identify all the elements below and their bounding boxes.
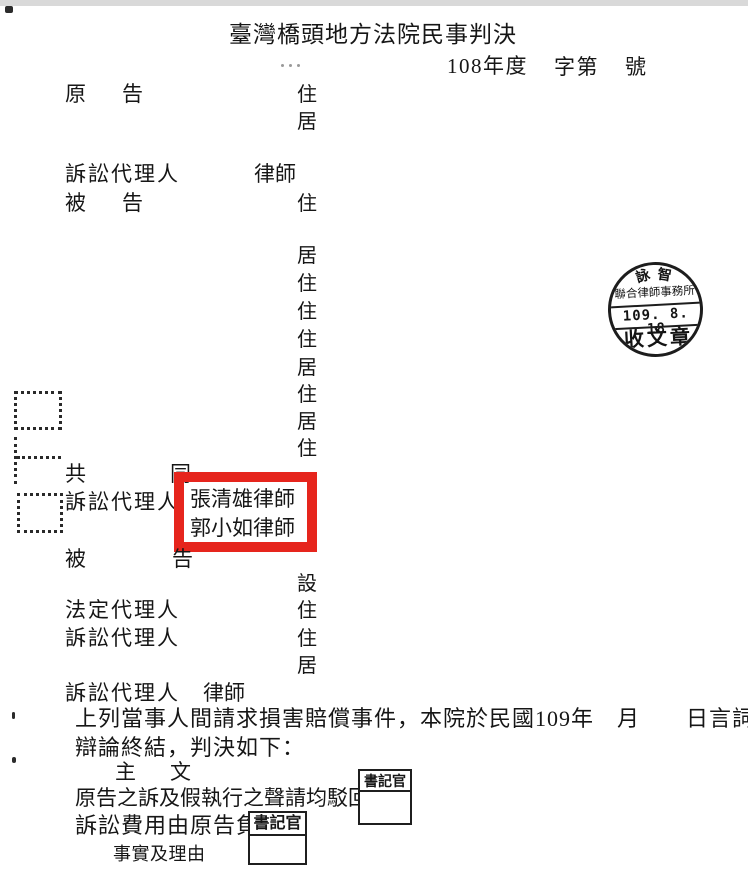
highlight-box — [174, 472, 317, 552]
address-char-ju: 居 — [297, 656, 317, 676]
address-char-zhu: 住 — [297, 439, 317, 459]
address-char-zhu: 住 — [297, 330, 317, 350]
scan-speck — [5, 6, 13, 13]
scan-speck — [289, 64, 292, 67]
scan-edge-artifact — [0, 0, 748, 6]
scan-speck — [281, 64, 284, 67]
plaintiff-label-char2: 告 — [122, 84, 143, 105]
case-number-zi-di: 字第 — [554, 57, 599, 78]
address-char-zhu: 住 — [297, 629, 317, 649]
defendant-label-char2: 告 — [172, 549, 193, 570]
facts-heading: 事實及理由 — [113, 845, 206, 863]
plaintiff-label-char1: 原 — [65, 84, 86, 105]
statutory-agent-label: 法定代理人 — [65, 600, 180, 621]
clerk-stamp-icon: 書記官 — [358, 769, 412, 825]
clerk-stamp-icon: 書記官 — [248, 811, 307, 865]
address-char-ju: 居 — [297, 412, 317, 432]
main-text-heading-char2: 文 — [170, 762, 191, 783]
receipt-stamp-firm-name-top: 詠智 — [609, 268, 699, 287]
firm-name-char2: 智 — [656, 268, 672, 284]
case-number-year: 108年度 — [447, 56, 528, 77]
dotted-remnant-mark — [14, 391, 62, 430]
ruling-line1: 原告之訴及假執行之聲請均駁回 — [75, 788, 369, 809]
litigation-agent-label: 訴訟代理人 — [65, 628, 180, 649]
clerk-stamp-blank-area — [250, 836, 305, 876]
defendant-label-char1: 被 — [65, 193, 86, 214]
judgment-document-page: 臺灣橋頭地方法院民事判決 108年度 字第 號 原 告 住 居 訴訟代理人 律師… — [0, 0, 748, 876]
lawyer-suffix: 律師 — [203, 683, 245, 704]
clerk-stamp-label: 書記官 — [250, 813, 305, 836]
firm-name-char1: 詠 — [635, 269, 652, 286]
main-text-heading-char1: 主 — [115, 762, 136, 783]
scan-speck — [297, 64, 300, 67]
address-char-zhu: 住 — [297, 601, 317, 621]
court-title: 臺灣橋頭地方法院民事判決 — [229, 23, 517, 46]
address-char-ju: 居 — [297, 112, 317, 132]
defendant-label-char2: 告 — [122, 193, 143, 214]
body-paragraph-line1: 上列當事人間請求損害賠償事件，本院於民國109年 月 日言詞 — [75, 708, 748, 730]
joint-label-char1: 共 — [65, 464, 86, 485]
address-char-zhu: 住 — [297, 194, 317, 214]
litigation-agent-label: 訴訟代理人 — [65, 164, 180, 185]
address-char-she: 設 — [297, 574, 317, 594]
highlighted-lawyer-2: 郭小如律師 — [190, 518, 295, 539]
address-char-zhu: 住 — [297, 85, 317, 105]
litigation-agent-label: 訴訟代理人 — [65, 492, 180, 513]
receipt-stamp-firm-name-bottom: 聯合律師事務所 — [610, 286, 699, 302]
law-firm-receipt-stamp-icon: 詠智 聯合律師事務所 109. 8. 18 收文章 — [606, 260, 706, 360]
address-char-zhu: 住 — [297, 302, 317, 322]
dotted-remnant-mark — [17, 493, 63, 533]
clerk-stamp-blank-area — [360, 792, 410, 844]
dotted-remnant-line — [17, 456, 61, 459]
defendant-label-char1: 被 — [65, 549, 86, 570]
address-char-ju: 居 — [297, 358, 317, 378]
litigation-agent-label: 訴訟代理人 — [65, 683, 180, 704]
case-number-hao: 號 — [625, 57, 646, 78]
body-paragraph-line2: 辯論終結，判決如下： — [75, 737, 305, 759]
dotted-remnant-mark — [14, 437, 61, 484]
address-char-zhu: 住 — [297, 274, 317, 294]
scan-speck — [12, 757, 16, 763]
address-char-ju: 居 — [297, 246, 317, 266]
address-char-zhu: 住 — [297, 385, 317, 405]
highlighted-lawyer-1: 張清雄律師 — [190, 489, 295, 510]
receipt-stamp-label: 收文章 — [612, 327, 702, 352]
lawyer-suffix: 律師 — [254, 164, 296, 185]
clerk-stamp-label: 書記官 — [360, 771, 410, 792]
scan-speck — [12, 712, 15, 719]
